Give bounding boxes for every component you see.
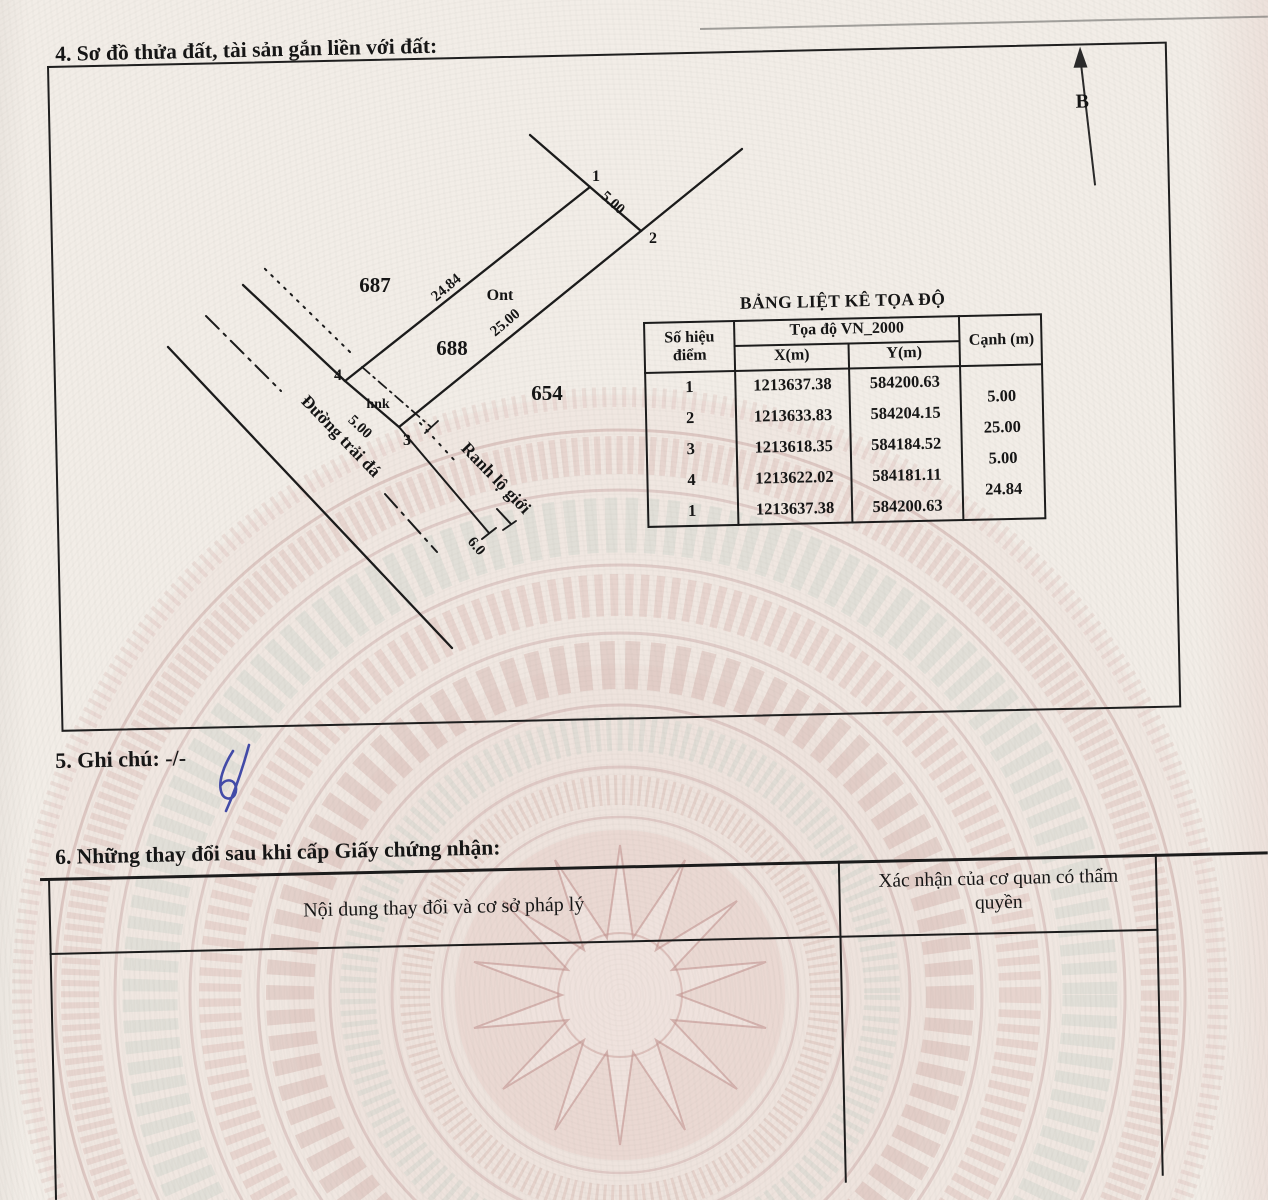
hnk-label: hnk — [366, 397, 390, 412]
cell-edge: 25.00 — [962, 411, 1043, 443]
section6-table: Nội dung thay đổi và cơ sở pháp lý Xác n… — [48, 854, 1164, 1200]
cell-point: 1 — [647, 494, 738, 527]
cell-y: 584200.63 — [850, 365, 960, 398]
coordinate-table: BẢNG LIỆT KÊ TỌA ĐỘ Số hiệu điểm Tọa độ … — [643, 313, 1046, 528]
road-centerline-b — [385, 494, 437, 552]
cell-x: 1213637.38 — [736, 368, 849, 401]
cell-x: 1213633.83 — [737, 399, 850, 432]
cell-y: 584184.52 — [851, 427, 961, 460]
cell-point: 3 — [645, 432, 736, 465]
road-boundary-dash — [497, 509, 511, 524]
boundary-ext-1 — [530, 135, 590, 187]
dim-right-label: 25.00 — [487, 306, 523, 340]
point-4-label: 4 — [334, 367, 342, 384]
dim-top-label: 5.00 — [598, 188, 628, 217]
point-1-label: 1 — [592, 168, 600, 185]
parcel-688-label: 688 — [436, 336, 468, 360]
cell-y: 584200.63 — [853, 489, 963, 522]
col-header-change-content: Nội dung thay đổi và cơ sở pháp lý — [49, 887, 839, 929]
point-3-label: 3 — [403, 432, 411, 449]
parcel-654-label: 654 — [531, 381, 563, 405]
cell-point: 1 — [644, 370, 735, 403]
boundary-ext-4-dotted — [263, 267, 350, 352]
section5-title: 5. Ghi chú: -/- — [55, 745, 186, 774]
col-header-authority-confirm: Xác nhận của cơ quan có thẩm quyền — [853, 864, 1144, 919]
road-boundary-dots — [420, 423, 456, 462]
cell-edge: 5.00 — [961, 380, 1042, 412]
cell-x: 1213618.35 — [737, 430, 850, 463]
boundary-ext-2 — [641, 149, 742, 231]
cell-point: 2 — [645, 401, 736, 434]
scanned-certificate-page: 4. Sơ đồ thửa đất, tài sản gắn liền với … — [0, 0, 1268, 1200]
land-use-label: Ont — [487, 287, 514, 304]
pen-scribble — [193, 733, 273, 821]
cell-y: 584204.15 — [851, 396, 961, 429]
cell-edge: 24.84 — [963, 473, 1044, 505]
section6-title: 6. Những thay đổi sau khi cấp Giấy chứng… — [55, 835, 501, 870]
cell-x: 1213622.02 — [738, 461, 851, 494]
road-boundary-label: Ranh lộ giới — [457, 438, 535, 518]
col-header-point: Số hiệu điểm — [647, 322, 732, 372]
col-header-y: Y(m) — [849, 340, 959, 367]
col-header-edge: Cạnh (m) — [960, 315, 1043, 365]
road-centerline-a — [206, 316, 281, 391]
point-2-label: 2 — [649, 230, 657, 247]
parcel-687-label: 687 — [359, 273, 391, 297]
cell-x: 1213637.38 — [739, 492, 852, 525]
road-width-tick — [482, 528, 496, 539]
cell-edge: 5.00 — [963, 442, 1044, 474]
cell-y: 584181.11 — [852, 458, 962, 491]
cell-point: 4 — [646, 463, 737, 496]
col-header-x: X(m) — [736, 343, 849, 370]
parcel-sketch: 687 688 654 Ont hnk 1 2 3 4 5.00 24.84 2… — [0, 0, 1268, 760]
